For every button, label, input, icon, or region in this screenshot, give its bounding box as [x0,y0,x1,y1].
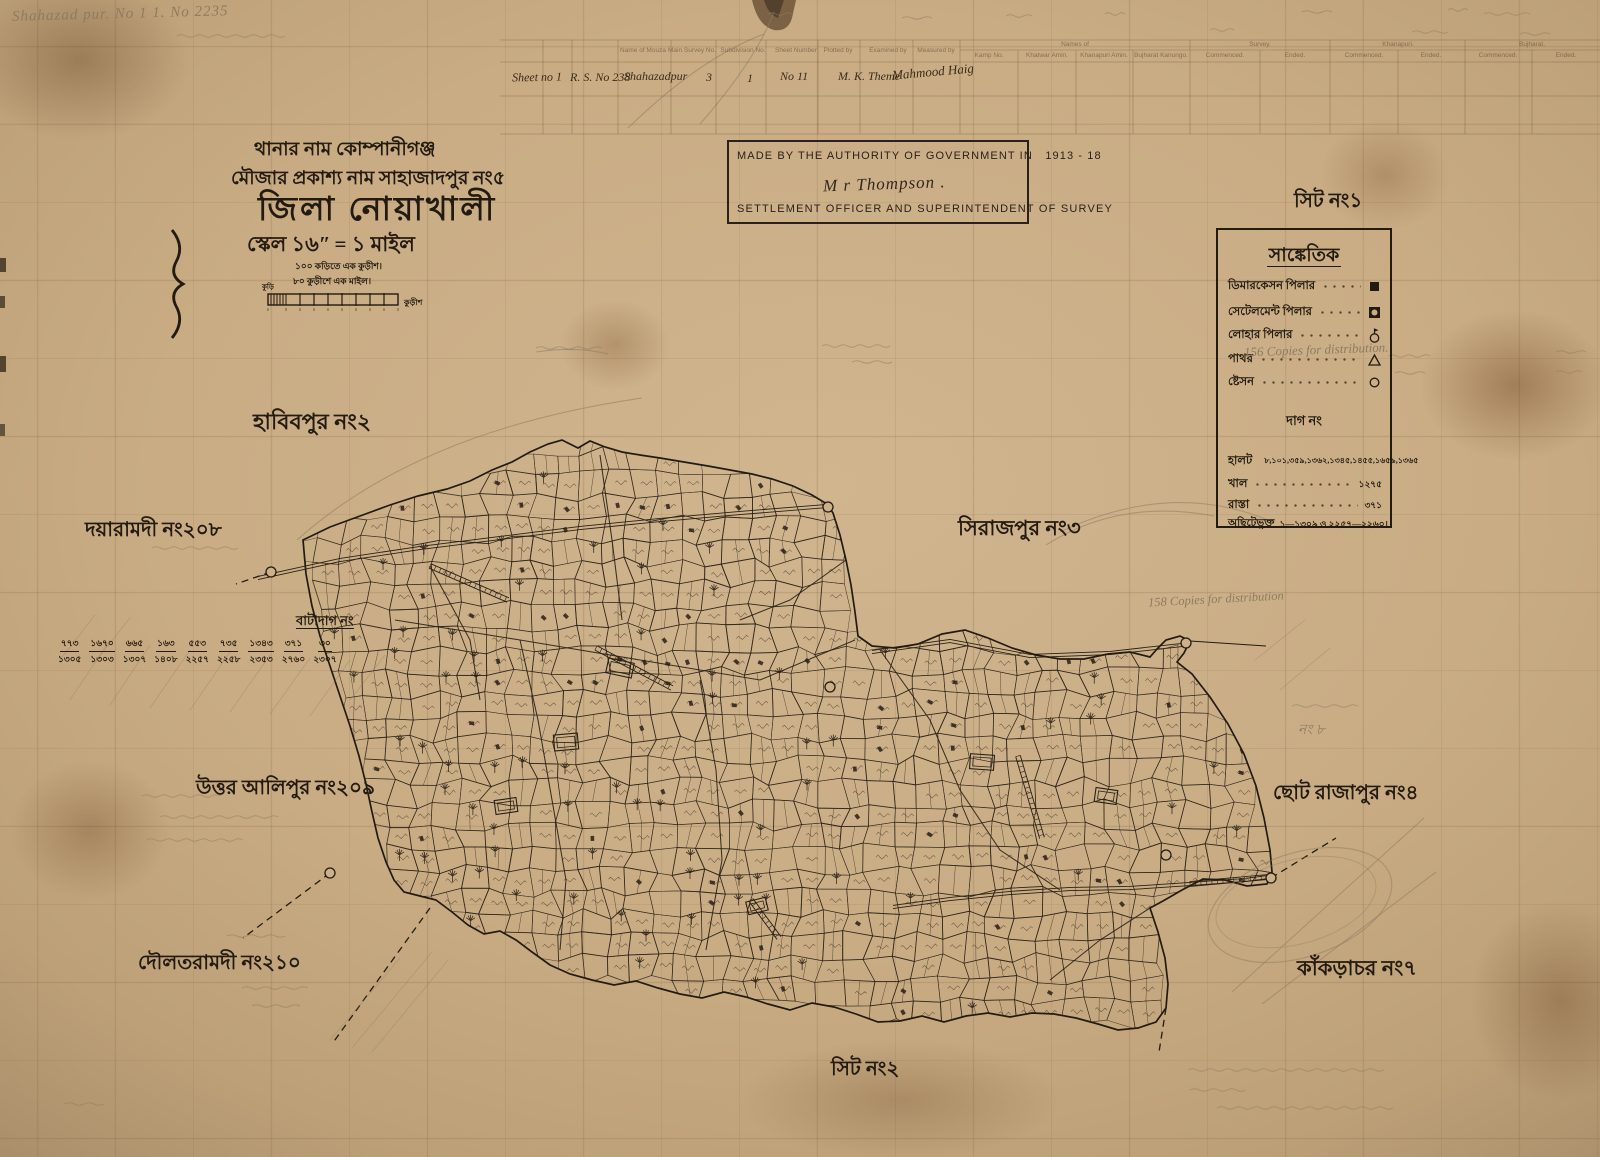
dag-number-header: দাগ নং [1218,412,1390,433]
pencil-handwriting-scribble [152,547,238,550]
tank-symbol [746,897,769,914]
edge-ink-mark [0,424,5,436]
pencil-handwriting-scribble [1188,1069,1384,1072]
survey-traverse-line [332,908,430,1044]
legend-label: ষ্টেসন [1228,373,1254,392]
station-circle [325,868,335,878]
pencil-handwriting-scribble [1388,355,1430,358]
authority-stamp: MADE BY THE AUTHORITY OF GOVERNMENT IN 1… [727,140,1029,224]
batadag-pair: ৭৩৫২২৫৮ [217,636,240,667]
dotted-leader [1318,311,1361,314]
pencil-handwriting-scribble [227,935,285,938]
form-entry-subdivision-no: 1 [747,71,753,86]
tank-symbol [970,754,995,771]
form-subcol-header: Ended. [1421,52,1442,59]
form-col-header: Plotted by [824,47,853,54]
stain [10,760,170,900]
tank-symbol [1094,788,1118,805]
neighbor-label-dayaramdi: দয়ারামদী নং২০৮ [85,519,222,541]
neighbor-label-uttar-alipur: উত্তর আলিপুর নং২০৯ [196,777,375,799]
pencil-stroke [310,660,350,716]
batadag-pair: ১৩৪৩২৩৫৩ [248,636,273,667]
dag-value: ১—১৩০৯ ও ২২৫৭—২২৬০। [1279,517,1387,532]
tank-symbol [494,798,518,815]
form-entry-main-survey-no: 3 [706,70,712,85]
survey-traverse-line [236,572,271,584]
paper-tear [752,0,796,30]
scale-note-2: ৮০ কুড়ীশে এক মাইল। [293,277,371,287]
scale-note-1: ১০০ কড়িতে এক কুড়ীশ। [295,262,382,272]
pencil-handwriting-scribble [64,1103,104,1106]
form-subcol-header: Khanapuri Amin. [1080,52,1128,59]
form-entry-rs-no: R. S. No 238 [570,70,630,85]
stain [1320,120,1450,230]
dag-row-khal: খাল ১২৭৫ [1228,475,1382,494]
neighbor-label-chhota-rajapur: ছোট রাজাপুর নং৪ [1273,782,1419,804]
survey-map-sheet: Name of MouzaMain Survey No.Subdivision … [0,0,1600,1157]
margin-brace [172,230,183,338]
parcel-mesh [290,434,1277,1029]
dag-row-rasta: রাস্তা ৩৭১ [1228,496,1382,515]
stamp-text: MADE BY THE AUTHORITY OF GOVERNMENT IN [737,150,1033,162]
survey-ray [1190,641,1266,646]
pencil-handwriting-scribble [252,1005,300,1008]
neighbor-label-habibpur: হাবিবপুর নং২ [253,410,371,434]
pencil-handwriting-scribble [822,345,890,348]
pencil-no8-note: নং ৮ [1298,718,1325,742]
settlement-pillar-icon [1367,305,1382,320]
pencil-handwriting-scribble [242,987,308,990]
legend-label: সেটেলমেন্ট পিলার [1228,303,1312,322]
legend-row-settlement-pillar: সেটেলমেন্ট পিলার [1228,303,1382,322]
stamp-line-1: MADE BY THE AUTHORITY OF GOVERNMENT IN 1… [737,150,1019,162]
pencil-handwriting-scribble [852,361,892,364]
form-subcol-header: Kamp No. [975,52,1004,59]
form-col-header: Subdivision No. [720,47,765,54]
form-col-header: Name of Mouza [620,47,666,54]
neighbor-label-kankrachar: কাঁকড়াচর নং৭ [1297,957,1417,980]
form-group-header: Bujharat. [1519,41,1545,48]
station-circle [823,502,833,512]
form-group-header: Khanapuri. [1382,41,1413,48]
station-circle [1266,873,1276,883]
dag-label: অছিটেভুক্ত [1228,516,1274,533]
dag-label: হালট [1228,452,1252,471]
dag-row-offset: অছিটেভুক্ত ১—১৩০৯ ও ২২৫৭—২২৬০। [1228,516,1382,533]
copies-note-map: 158 Copies for distribution [1148,588,1284,610]
sheet-no-2-label: সিট নং২ [831,1058,899,1080]
pencil-handwriting-scribble [1412,31,1448,34]
paper-tear-dark [764,0,784,18]
neighbor-label-daulatramdi: দৌলতরামদী নং২১০ [138,952,301,974]
dag-value: ৩৭১ [1364,498,1382,513]
form-subcol-header: Commenced. [1479,52,1518,59]
title-thana-line: থানার নাম কোম্পানীগঞ্জ [254,140,436,161]
dotted-leader [1255,504,1358,507]
form-subcol-header: Khatwar Amin. [1026,52,1068,59]
dag-label: খাল [1228,475,1247,494]
pencil-mark [1206,840,1386,964]
dotted-leader [1298,334,1361,337]
batadag-pair: ৩৭১২৭৬০ [282,636,305,667]
pencil-handwriting-scribble [1190,1089,1246,1092]
form-entry-sheet-no: Sheet no 1 [512,70,562,86]
neighbor-label-sirajpur: সিরাজপুর নং৩ [958,517,1081,540]
batadag-pair: ১৬৩১৪০৮ [154,636,177,667]
dotted-leader [1260,381,1361,384]
form-col-header: Main Survey No. [668,47,716,54]
title-scale-line: স্কেল ১৬ʺ = ১ মাইল [247,233,415,256]
pencil-handwriting-scribble [177,35,285,38]
pencil-stroke [330,958,400,1040]
station-circle [1161,850,1171,860]
stamp-signature: M r Thompson . [823,169,1020,196]
pencil-mark [1262,872,1436,1004]
batadag-pair: ৬৬৫১৩০৭ [123,636,146,667]
pencil-handwriting-scribble [160,816,278,819]
legend-label: ডিমারকেসন পিলার [1228,277,1315,296]
pencil-stroke [1255,620,1305,660]
mouza-boundary [303,440,1272,1030]
pencil-stroke [352,952,432,1048]
form-col-header: Sheet Number [775,47,817,54]
pencil-handwriting-scribble [1520,33,1550,36]
pencil-handwriting-scribble [1302,11,1332,14]
pencil-handwriting-scribble [902,17,932,20]
dag-value: ৮,১০১,৩৫৯,১৩৬২,১৩৪৫,১৪৫৫,১৬৫৯,১৩৬৫ [1264,455,1418,468]
form-col-header: Measured by [917,47,955,54]
stain [1420,310,1600,460]
station-circle [1181,638,1191,648]
legend-row-demarcation-pillar: ডিমারকেসন পিলার [1228,277,1382,296]
station-circle [266,567,276,577]
legend-row-station: ষ্টেসন [1228,373,1382,392]
pencil-mark [700,12,774,124]
form-group-header: Names of [1061,41,1089,48]
pencil-handwriting-scribble [1448,9,1468,12]
pencil-stroke [372,960,448,1052]
station-circle [825,682,835,692]
pencil-stroke [1280,648,1330,690]
form-entry-sheet-number: No 11 [780,69,808,84]
form-col-header: Examined by [869,47,907,54]
tank-symbol [606,658,635,678]
batadag-pair: ৭৭৩১৩০৫ [58,636,81,667]
dotted-leader [1321,285,1361,288]
form-entry-plotted-by: M. K. Theme [838,69,900,84]
title-district-line: জিলা নোয়াখালী [258,192,497,228]
dag-value: ১২৭৫ [1359,477,1382,492]
batadag-pair: ৫৫৩২২৫৭ [186,636,209,667]
legend-title-text: সাঙ্কেতিক [1267,245,1342,267]
stain [560,300,670,390]
form-subcol-header: Bujharat Kanungo. [1134,52,1188,59]
edge-ink-mark [0,296,5,308]
legend-title: সাঙ্কেতিক [1218,246,1390,267]
sheet-no-1-label: সিট নং১ [1294,190,1362,212]
edge-ink-mark [0,356,6,372]
survey-traverse-line [1271,838,1336,878]
batadag-title: বাটাদাগ নং [296,614,354,629]
pencil-handwriting-scribble [1105,13,1125,16]
dotted-leader [1253,483,1352,486]
batadag-number-pairs: ৭৭৩১৩০৫১৬৭০১৩০৩৬৬৫১৩০৭১৬৩১৪০৮৫৫৩২২৫৭৭৩৫২… [58,636,458,667]
legend-box: সাঙ্কেতিক ডিমারকেসন পিলার সেটেলমেন্ট পিল… [1216,228,1392,528]
pencil-handwriting-scribble [1484,13,1530,16]
demarcation-pillar-icon [1367,279,1382,294]
stain [1470,900,1600,1100]
form-entry-examined-by-signature: Mahmood Haig [891,60,974,83]
title-mouza-line: মৌজার প্রকাশ্য নাম সাহাজাদপুর নং৫ [231,169,505,190]
station-icon [1367,375,1382,390]
form-group-header: Survey. [1249,41,1271,48]
pencil-handwriting-scribble [1217,1107,1393,1110]
form-subcol-header: Ended. [1556,52,1577,59]
form-subcol-header: Ended. [1285,52,1306,59]
stamp-years: 1913 - 18 [1045,150,1101,162]
dag-label: রাস্তা [1228,496,1249,515]
form-subcol-header: Commenced. [1206,52,1245,59]
survey-traverse-line [243,873,330,938]
pencil-handwriting-scribble [768,13,792,16]
batadag-pair: ৩০২৩০৭ [313,636,336,667]
edge-ink-mark [0,258,6,272]
batadag-pair: ১৬৭০১৩০৩ [89,636,114,667]
pencil-handwriting-scribble [1006,15,1032,18]
pencil-handwriting-scribble [1292,705,1358,708]
roads [258,504,1268,939]
tank-symbol [553,733,578,751]
pencil-handwriting-scribble [1210,29,1234,32]
dag-row-halot: হালট ৮,১০১,৩৫৯,১৩৬২,১৩৪৫,১৪৫৫,১৬৫৯,১৩৬৫ [1228,452,1382,471]
survey-traverse-line [1159,1008,1166,1052]
scale-bar [258,288,418,322]
stain [740,1040,1060,1157]
stamp-line-2: SETTLEMENT OFFICER AND SUPERINTENDENT OF… [737,203,1019,215]
form-entry-mouza: Shahazadpur [624,69,687,84]
form-subcol-header: Commenced. [1345,52,1384,59]
